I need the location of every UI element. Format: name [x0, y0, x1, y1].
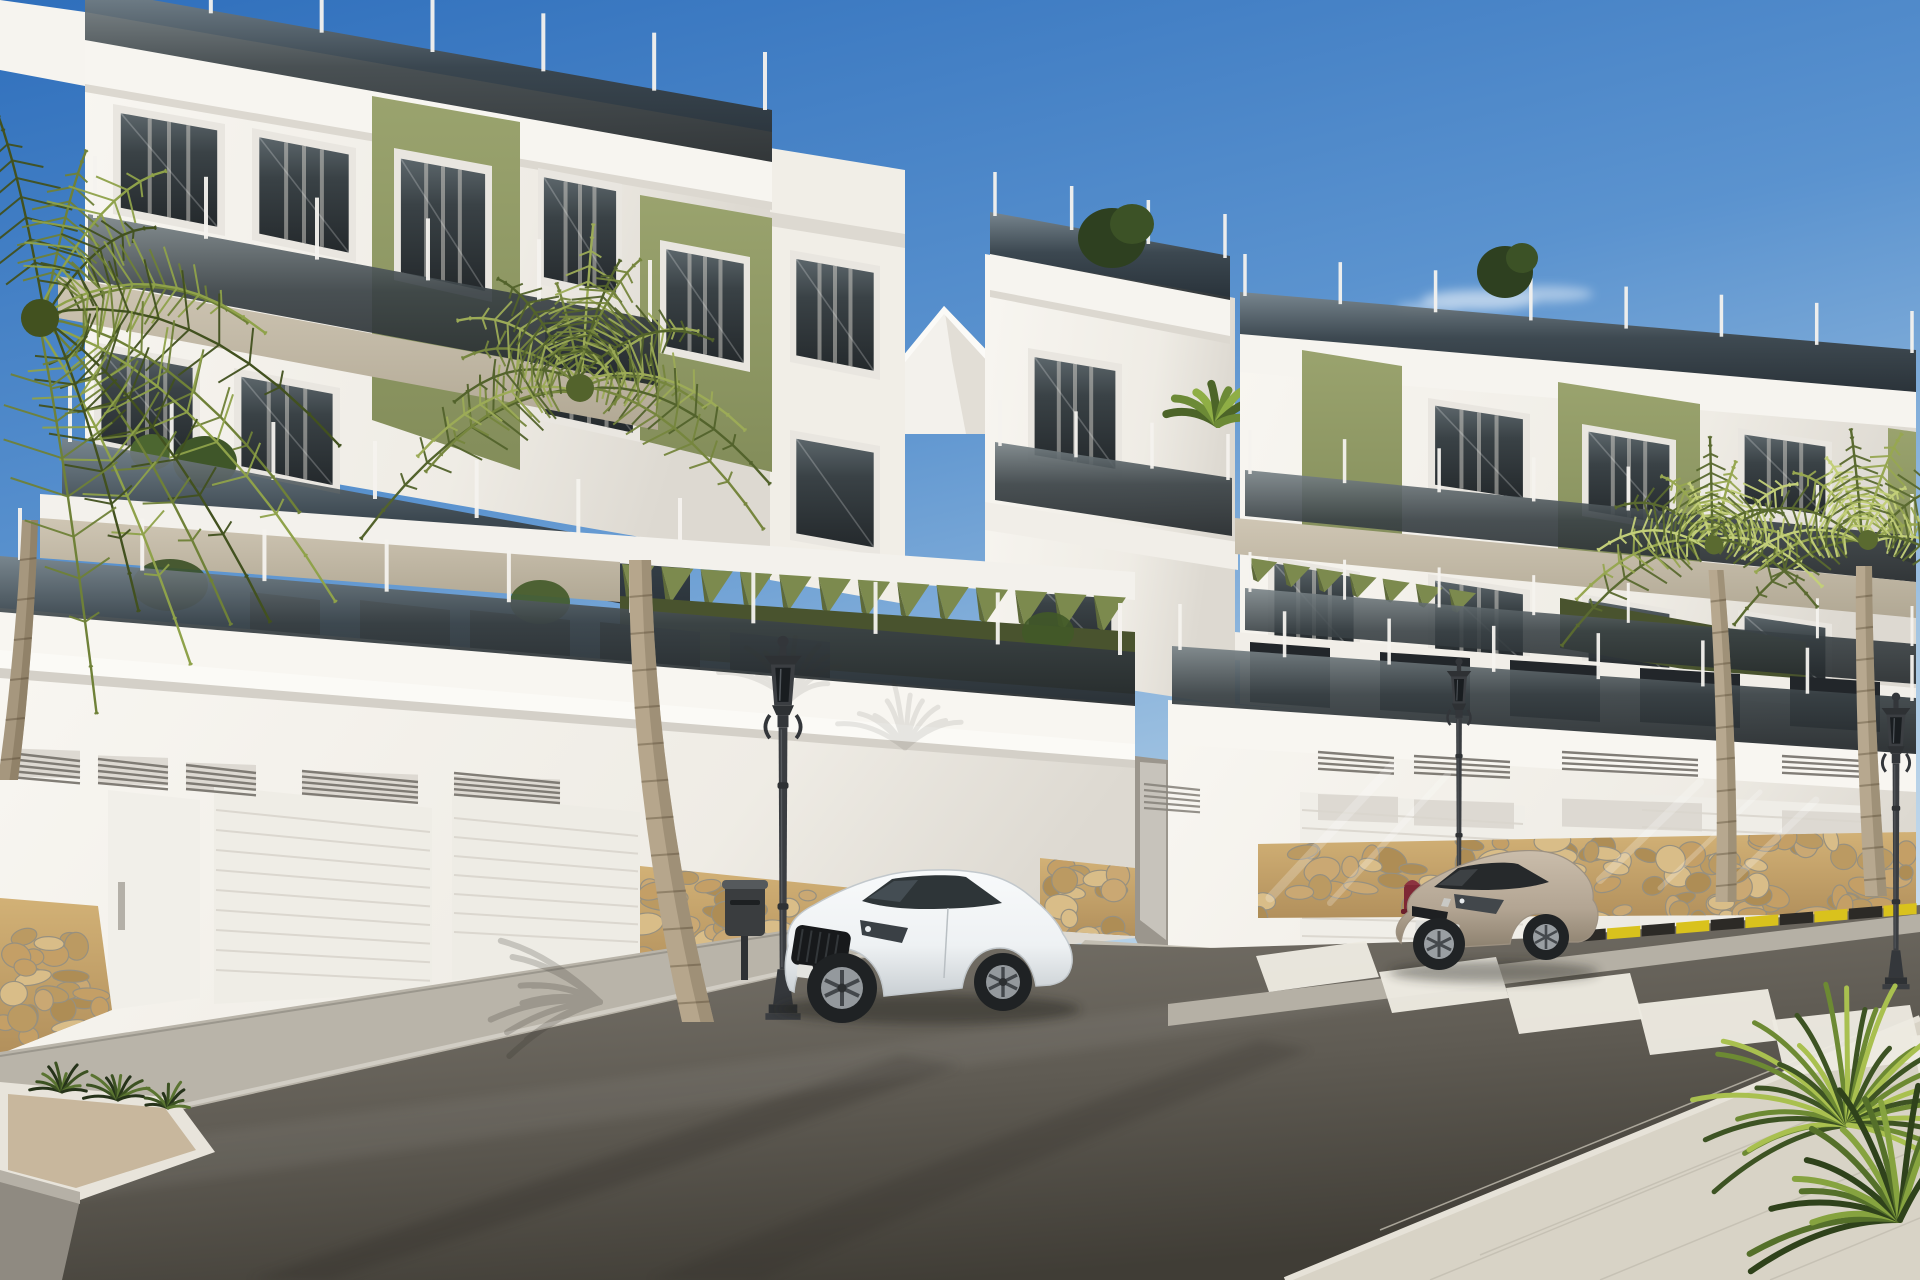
architectural-render [0, 0, 1920, 1280]
vent-grille [1414, 799, 1514, 828]
front-wheel [1413, 918, 1465, 970]
rear-wheel [974, 953, 1032, 1011]
render-canvas [0, 0, 1920, 1280]
rear-wheel [1523, 914, 1569, 960]
front-wheel [807, 953, 877, 1023]
door-handle [118, 882, 125, 930]
